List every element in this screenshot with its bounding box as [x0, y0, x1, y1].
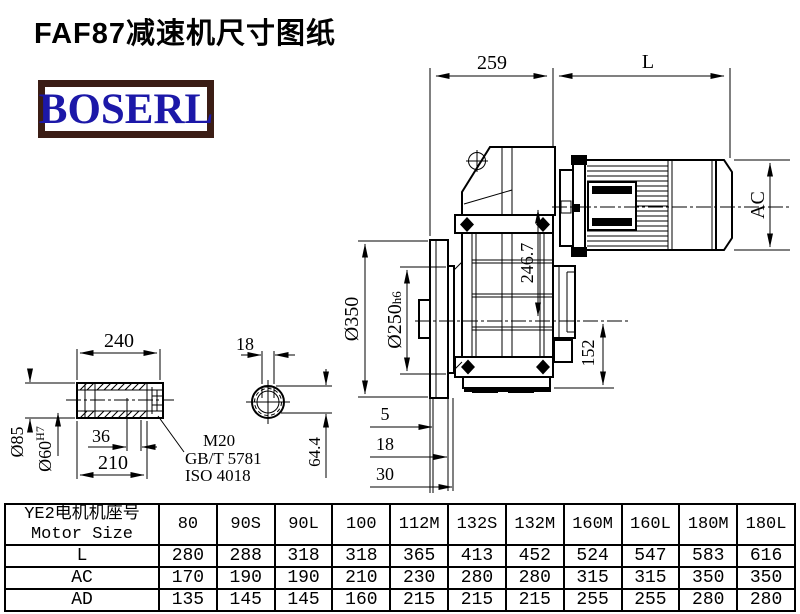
dim-text-85: Ø85 [7, 427, 27, 458]
column-header: 132S [448, 504, 506, 545]
dim-152: 152 [554, 324, 614, 388]
cell: 190 [275, 567, 333, 589]
cell: 215 [390, 589, 448, 611]
cell: 318 [275, 545, 333, 567]
leader-line [158, 416, 184, 452]
cell: 160 [332, 589, 390, 611]
cell: 280 [506, 567, 564, 589]
cell: 547 [622, 545, 680, 567]
cell: 210 [332, 567, 390, 589]
column-header: 112M [390, 504, 448, 545]
dim-246-7: 246.7 [517, 210, 538, 316]
gearbox-mid-internals [472, 233, 553, 357]
dim-text-L: L [642, 51, 654, 73]
cell: 616 [737, 545, 795, 567]
table-row-AC: AC 170 190 190 210 230 280 280 315 315 3… [5, 567, 795, 589]
dim-text-259: 259 [477, 52, 507, 74]
cell: 170 [159, 567, 217, 589]
column-header: 80 [159, 504, 217, 545]
extension-lines [127, 398, 141, 451]
dim-text-240: 240 [104, 330, 134, 352]
dim-250-tol: h6 [389, 291, 404, 305]
callout-iso: ISO 4018 [185, 466, 251, 485]
bolt-diamond [536, 360, 550, 375]
row-label: AD [5, 589, 159, 611]
flange-edge-lines [430, 398, 453, 493]
column-header: 90L [275, 504, 333, 545]
dim-250h6: Ø250h6 [384, 267, 446, 374]
cell: 315 [622, 567, 680, 589]
bolt-diamond [460, 217, 474, 232]
cell: 350 [737, 567, 795, 589]
hub-lines [454, 262, 462, 370]
cell: 280 [448, 567, 506, 589]
dim-210: 210 [77, 421, 147, 479]
column-header: 132M [506, 504, 564, 545]
gearbox-top-section [462, 147, 555, 215]
keyway-ext-lines [262, 351, 274, 384]
dim-text-210: 210 [98, 452, 128, 474]
dim-text-18: 18 [376, 434, 394, 454]
dim-text-30: 30 [376, 464, 394, 484]
column-header: 180L [737, 504, 795, 545]
shaft-stub [419, 300, 430, 338]
table-header-row: YE2电机机座号 Motor Size 80 90S 90L 100 112M … [5, 504, 795, 545]
bolt-hole-cross [466, 150, 488, 172]
dim-text-644: 64.4 [305, 437, 324, 467]
flange-spigot [448, 266, 454, 373]
column-header: 90S [217, 504, 275, 545]
base-foot [508, 388, 534, 393]
dim-text-36: 36 [92, 426, 110, 446]
cell: 280 [159, 545, 217, 567]
dim-text-350: Ø350 [341, 297, 363, 341]
cell: 413 [448, 545, 506, 567]
dim-text-60H7: Ø60H7 [33, 426, 55, 472]
dim-60-main: Ø60 [35, 441, 55, 472]
dim-text-250h6: Ø250h6 [384, 291, 406, 349]
nameplate-strip [592, 218, 632, 226]
cell: 280 [679, 589, 737, 611]
dim-240: 240 [77, 330, 160, 380]
column-header: 160M [564, 504, 622, 545]
dim-60H7: Ø60H7 [33, 413, 58, 472]
cell: 365 [390, 545, 448, 567]
dim-60-tol: H7 [33, 426, 47, 441]
motor-size-table: YE2电机机座号 Motor Size 80 90S 90L 100 112M … [4, 503, 796, 612]
drawing-page: FAF87减速机尺寸图纸 BOSERL 259 L [0, 0, 800, 614]
callout-m20: M20 [203, 431, 235, 450]
thread-callout: M20 GB/T 5781 ISO 4018 [158, 416, 262, 485]
cell: 350 [679, 567, 737, 589]
rear-cover-step [554, 340, 572, 362]
column-header: 100 [332, 504, 390, 545]
row-label: AC [5, 567, 159, 589]
cell: 255 [622, 589, 680, 611]
extension-lines [77, 349, 160, 380]
header-motor-size-en: Motor Size [6, 525, 158, 545]
section-hatching [80, 383, 146, 418]
cell: 524 [564, 545, 622, 567]
table-row-L: L 280 288 318 318 365 413 452 524 547 58… [5, 545, 795, 567]
cell: 145 [275, 589, 333, 611]
column-header: 160L [622, 504, 680, 545]
motor-frame-lines [668, 160, 712, 250]
row-label: L [5, 545, 159, 567]
cell: 288 [217, 545, 275, 567]
extension-lines [25, 383, 75, 418]
hollow-shaft-detail [66, 383, 174, 418]
cell: 215 [448, 589, 506, 611]
cell: 230 [390, 567, 448, 589]
cell: 215 [506, 589, 564, 611]
cell: 145 [217, 589, 275, 611]
fan-cover [716, 160, 732, 250]
rear-bearing-cover [553, 266, 575, 338]
dim-AC: AC [734, 160, 790, 250]
dim-text-246-7: 246.7 [517, 243, 537, 284]
dim-250-main: Ø250 [384, 304, 406, 348]
base-foot [472, 388, 498, 393]
cell: 583 [679, 545, 737, 567]
cell: 452 [506, 545, 564, 567]
dim-text-152: 152 [578, 340, 598, 367]
cell: 318 [332, 545, 390, 567]
header-motor-size-zh: YE2电机机座号 [6, 505, 158, 525]
bolt-diamond [461, 360, 475, 375]
gearbox-top-internals [464, 147, 512, 215]
column-header: 180M [679, 504, 737, 545]
dim-text-AC: AC [747, 191, 769, 219]
cell: 280 [737, 589, 795, 611]
dim-text-key18: 18 [236, 334, 254, 354]
coupling-key [573, 204, 580, 212]
dim-text-5: 5 [381, 404, 390, 424]
cell: 190 [217, 567, 275, 589]
cell: 315 [564, 567, 622, 589]
table-row-AD: AD 135 145 145 160 215 215 215 255 255 2… [5, 589, 795, 611]
cell: 135 [159, 589, 217, 611]
rear-cover-internals [559, 266, 575, 338]
dims-5-18-30: 5 18 30 [370, 404, 452, 487]
cell: 255 [564, 589, 622, 611]
gearbox-base [463, 377, 550, 388]
nameplate-strip [592, 186, 632, 194]
header-motor-size: YE2电机机座号 Motor Size [5, 504, 159, 545]
